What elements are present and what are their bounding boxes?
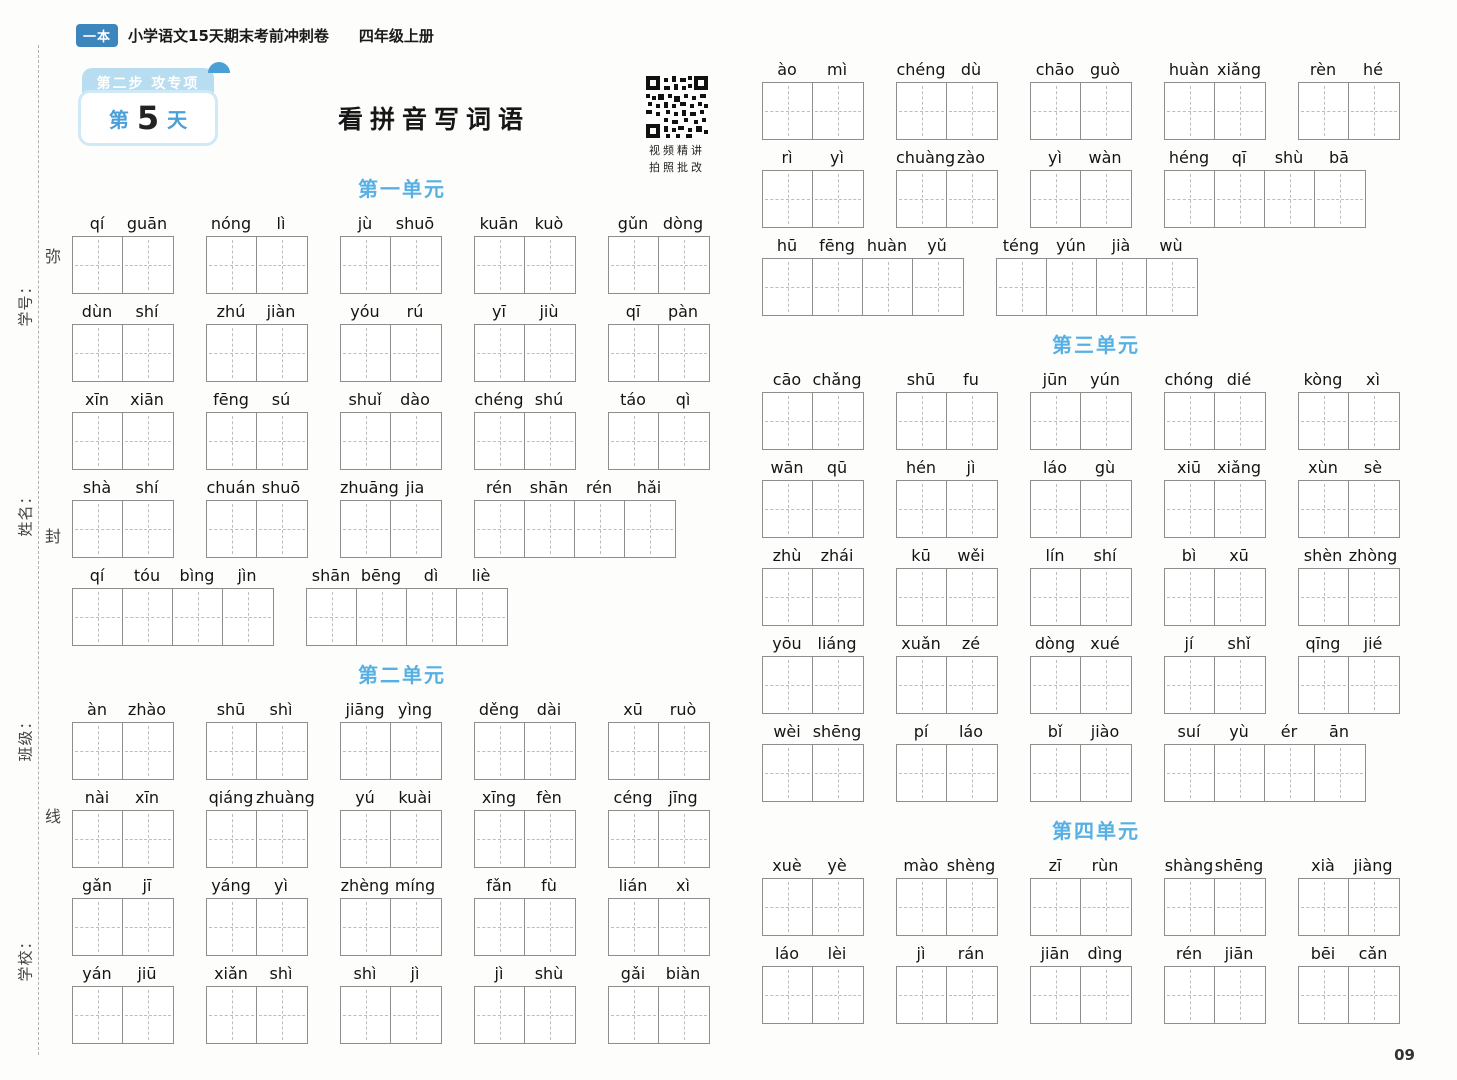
pinyin-syllable: láo <box>1030 458 1080 478</box>
word-group: kūwěi <box>896 546 998 626</box>
word-group: wèishēng <box>762 722 864 802</box>
writing-cell <box>609 987 659 1043</box>
pinyin-syllable: nóng <box>206 214 256 234</box>
writing-cell <box>1215 393 1265 449</box>
writing-cell <box>257 413 307 469</box>
pinyin-row: chóngdié <box>1164 370 1266 390</box>
pinyin-syllable: jīng <box>658 788 708 808</box>
word-group: xiūxiǎng <box>1164 458 1266 538</box>
header-bar: 一本 小学语文15天期末考前冲刺卷 四年级上册 <box>76 24 434 47</box>
pinyin-row: shānbēngdìliè <box>306 566 508 586</box>
writing-cell <box>1315 171 1365 227</box>
writing-cell <box>207 325 257 381</box>
writing-boxes <box>608 986 710 1044</box>
word-group: yōuliáng <box>762 634 864 714</box>
pinyin-syllable: shì <box>256 964 306 984</box>
pinyin-syllable: huàn <box>862 236 912 256</box>
writing-cell <box>947 967 997 1023</box>
writing-boxes <box>896 392 998 450</box>
writing-cell <box>475 811 525 867</box>
writing-cell <box>207 811 257 867</box>
writing-boxes <box>1164 82 1266 140</box>
pinyin-syllable: zào <box>946 148 996 168</box>
writing-cell <box>1215 967 1265 1023</box>
writing-cell <box>1165 481 1215 537</box>
pinyin-syllable: bā <box>1314 148 1364 168</box>
pinyin-row: shūshì <box>206 700 308 720</box>
writing-cell <box>357 589 407 645</box>
word-group: cāochǎng <box>762 370 864 450</box>
pinyin-syllable: qí <box>72 214 122 234</box>
pinyin-syllable: jiān <box>1030 944 1080 964</box>
pinyin-syllable: ào <box>762 60 812 80</box>
worksheet-page: 学号： 姓名： 班级： 学校： 弥 封 线 一本 小学语文15天期末考前冲刺卷 … <box>0 0 1457 1080</box>
pinyin-syllable: sú <box>256 390 306 410</box>
pinyin-syllable: shān <box>524 478 574 498</box>
writing-cell <box>207 899 257 955</box>
writing-boxes <box>762 480 864 538</box>
writing-cell <box>391 501 441 557</box>
writing-cell <box>525 899 575 955</box>
pinyin-syllable: rì <box>762 148 812 168</box>
pinyin-syllable: qū <box>812 458 862 478</box>
writing-boxes <box>1030 966 1132 1024</box>
pinyin-syllable: zhuàng <box>256 788 306 808</box>
pinyin-syllable: yì <box>256 876 306 896</box>
writing-cell <box>813 745 863 801</box>
pinyin-syllable: mì <box>812 60 862 80</box>
name-label: 姓名： <box>15 473 36 553</box>
section-title: 第四单元 <box>762 815 1430 844</box>
writing-cell <box>73 589 123 645</box>
writing-boxes <box>608 810 710 868</box>
pinyin-syllable: shuō <box>256 478 306 498</box>
writing-cell <box>341 723 391 779</box>
pinyin-syllable: jí <box>1164 634 1214 654</box>
pinyin-syllable: jia <box>390 478 440 498</box>
pinyin-syllable: xiǎn <box>206 964 256 984</box>
writing-cell <box>659 987 709 1043</box>
writing-boxes <box>762 392 864 450</box>
pinyin-syllable: kuò <box>524 214 574 234</box>
pinyin-syllable: gù <box>1080 458 1130 478</box>
pinyin-syllable: xū <box>1214 546 1264 566</box>
writing-boxes <box>896 656 998 714</box>
pinyin-row: shuǐdào <box>340 390 442 410</box>
word-row: hūfēnghuànyǔténgyúnjiàwù <box>762 236 1430 316</box>
pinyin-syllable: cǎn <box>1348 944 1398 964</box>
writing-cell <box>813 569 863 625</box>
pinyin-row: táoqì <box>608 390 710 410</box>
pinyin-syllable: chuàng <box>896 148 946 168</box>
pinyin-row: qiángzhuàng <box>206 788 308 808</box>
pinyin-syllable: dào <box>390 390 440 410</box>
writing-cell <box>207 413 257 469</box>
word-group: jíshǐ <box>1164 634 1266 714</box>
pinyin-syllable: wàn <box>1080 148 1130 168</box>
word-group: yánjiū <box>72 964 174 1044</box>
word-group: yījiù <box>474 302 576 382</box>
word-group: qīngjié <box>1298 634 1400 714</box>
writing-boxes <box>1164 170 1366 228</box>
pinyin-syllable: fǎn <box>474 876 524 896</box>
word-group: shūshì <box>206 700 308 780</box>
pinyin-row: yánjiū <box>72 964 174 984</box>
writing-cell <box>391 237 441 293</box>
pinyin-syllable: jì <box>390 964 440 984</box>
word-group: shàngshēng <box>1164 856 1266 936</box>
writing-cell <box>1165 171 1215 227</box>
pinyin-syllable: xuè <box>762 856 812 876</box>
writing-cell <box>475 987 525 1043</box>
qr-caption-line1: 视频精讲 <box>641 144 713 159</box>
word-group: xīnxiān <box>72 390 174 470</box>
pinyin-row: láogù <box>1030 458 1132 478</box>
pinyin-syllable: wěi <box>946 546 996 566</box>
writing-boxes <box>762 568 864 626</box>
pinyin-row: zhùzhái <box>762 546 864 566</box>
pinyin-syllable: chéng <box>474 390 524 410</box>
writing-boxes <box>340 810 442 868</box>
writing-boxes <box>72 898 174 956</box>
pinyin-syllable: shū <box>206 700 256 720</box>
writing-cell <box>123 589 173 645</box>
writing-cell <box>947 657 997 713</box>
writing-cell <box>1081 879 1131 935</box>
pinyin-syllable: chǎng <box>812 370 862 390</box>
writing-cell <box>1349 481 1399 537</box>
writing-cell <box>257 723 307 779</box>
writing-boxes <box>340 986 442 1044</box>
writing-cell <box>1265 745 1315 801</box>
pinyin-syllable: yóu <box>340 302 390 322</box>
word-row: yōuliángxuǎnzédòngxuéjíshǐqīngjié <box>762 634 1430 714</box>
writing-cell <box>1081 967 1131 1023</box>
pinyin-row: fǎnfù <box>474 876 576 896</box>
pinyin-syllable: yún <box>1046 236 1096 256</box>
writing-cell <box>1349 879 1399 935</box>
writing-cell <box>1031 879 1081 935</box>
writing-cell <box>1031 657 1081 713</box>
word-group: chéngdù <box>896 60 998 140</box>
writing-cell <box>475 501 525 557</box>
writing-boxes <box>1298 568 1400 626</box>
writing-cell <box>1215 481 1265 537</box>
word-group: línshí <box>1030 546 1132 626</box>
writing-boxes <box>762 744 864 802</box>
writing-cell <box>1081 745 1131 801</box>
left-column: 第一单元qíguānnónglìjùshuōkuānkuògǔndòngdùns… <box>72 160 732 1052</box>
pinyin-syllable: xì <box>658 876 708 896</box>
book-title: 小学语文15天期末考前冲刺卷 <box>128 25 329 46</box>
pinyin-syllable: biàn <box>658 964 708 984</box>
writing-cell <box>763 569 813 625</box>
pinyin-syllable: táo <box>608 390 658 410</box>
writing-cell <box>391 325 441 381</box>
pinyin-syllable: hén <box>896 458 946 478</box>
writing-boxes <box>1164 744 1366 802</box>
pinyin-row: rénjiān <box>1164 944 1266 964</box>
writing-cell <box>257 987 307 1043</box>
writing-boxes <box>206 810 308 868</box>
writing-boxes <box>1164 878 1266 936</box>
pinyin-row: shìjì <box>340 964 442 984</box>
pinyin-syllable: gǔn <box>608 214 658 234</box>
writing-cell <box>897 657 947 713</box>
pinyin-row: bǐjiào <box>1030 722 1132 742</box>
writing-cell <box>609 237 659 293</box>
writing-boxes <box>1030 480 1132 538</box>
pinyin-syllable: liè <box>456 566 506 586</box>
writing-cell <box>207 501 257 557</box>
writing-boxes <box>762 656 864 714</box>
word-group: qíguān <box>72 214 174 294</box>
writing-cell <box>863 259 913 315</box>
writing-boxes <box>72 500 174 558</box>
writing-cell <box>257 899 307 955</box>
pinyin-syllable: yì <box>1030 148 1080 168</box>
writing-cell <box>813 83 863 139</box>
writing-cell <box>1081 481 1131 537</box>
pinyin-row: jūnyún <box>1030 370 1132 390</box>
word-group: jìrán <box>896 944 998 1024</box>
writing-boxes <box>72 324 174 382</box>
word-group: táoqì <box>608 390 710 470</box>
writing-cell <box>391 723 441 779</box>
writing-cell <box>1299 879 1349 935</box>
pinyin-syllable: bǐ <box>1030 722 1080 742</box>
writing-cell <box>1215 171 1265 227</box>
pinyin-syllable: jù <box>340 214 390 234</box>
writing-cell <box>1081 83 1131 139</box>
writing-cell <box>625 501 675 557</box>
writing-cell <box>1299 967 1349 1023</box>
writing-boxes <box>206 412 308 470</box>
pinyin-syllable: xīng <box>474 788 524 808</box>
brand-logo: 一本 <box>76 24 118 47</box>
pinyin-row: hūfēnghuànyǔ <box>762 236 964 256</box>
writing-cell <box>123 723 173 779</box>
pinyin-syllable: xiān <box>122 390 172 410</box>
pinyin-row: rènhé <box>1298 60 1400 80</box>
writing-boxes <box>762 82 864 140</box>
writing-cell <box>659 325 709 381</box>
writing-boxes <box>896 744 998 802</box>
pinyin-row: gǔndòng <box>608 214 710 234</box>
pinyin-syllable: jiàn <box>256 302 306 322</box>
writing-cell <box>947 171 997 227</box>
page-title: 看拼音写词语 <box>338 100 530 136</box>
pinyin-syllable: qiáng <box>206 788 256 808</box>
pinyin-row: wèishēng <box>762 722 864 742</box>
word-group: qiángzhuàng <box>206 788 308 868</box>
writing-boxes <box>206 236 308 294</box>
school-label: 学校： <box>15 918 36 998</box>
pinyin-row: xīngfèn <box>474 788 576 808</box>
pinyin-syllable: jiào <box>1080 722 1130 742</box>
pinyin-syllable: láo <box>946 722 996 742</box>
pinyin-syllable: dù <box>946 60 996 80</box>
word-row: xīnxiānfēngsúshuǐdàochéngshútáoqì <box>72 390 732 470</box>
writing-cell <box>525 987 575 1043</box>
pinyin-syllable: lín <box>1030 546 1080 566</box>
writing-boxes <box>762 966 864 1024</box>
writing-cell <box>763 745 813 801</box>
writing-boxes <box>474 722 576 780</box>
writing-boxes <box>1298 82 1400 140</box>
writing-cell <box>609 723 659 779</box>
pinyin-row: bìxū <box>1164 546 1266 566</box>
writing-cell <box>341 501 391 557</box>
writing-cell <box>813 481 863 537</box>
pinyin-syllable: xiǎng <box>1214 458 1264 478</box>
pinyin-syllable: shèng <box>946 856 996 876</box>
writing-cell <box>475 413 525 469</box>
writing-boxes <box>72 986 174 1044</box>
writing-cell <box>123 501 173 557</box>
pinyin-row: láolèi <box>762 944 864 964</box>
writing-boxes <box>762 878 864 936</box>
pinyin-row: zhèngmíng <box>340 876 442 896</box>
pinyin-syllable: zhú <box>206 302 256 322</box>
writing-cell <box>813 393 863 449</box>
pinyin-syllable: qī <box>1214 148 1264 168</box>
word-group: nàixīn <box>72 788 174 868</box>
pinyin-row: yóurú <box>340 302 442 322</box>
pinyin-row: suíyùérān <box>1164 722 1366 742</box>
pinyin-syllable: guān <box>122 214 172 234</box>
writing-boxes <box>474 236 576 294</box>
writing-boxes <box>1030 744 1132 802</box>
writing-boxes <box>1298 392 1400 450</box>
writing-cell <box>525 325 575 381</box>
writing-cell <box>1215 745 1265 801</box>
word-group: rìyì <box>762 148 864 228</box>
word-group: xīngfèn <box>474 788 576 868</box>
word-group: jiāndìng <box>1030 944 1132 1024</box>
writing-boxes <box>608 412 710 470</box>
writing-cell <box>947 481 997 537</box>
word-row: nàixīnqiángzhuàngyúkuàixīngfèncéngjīng <box>72 788 732 868</box>
writing-boxes <box>72 236 174 294</box>
pinyin-row: xiūxiǎng <box>1164 458 1266 478</box>
writing-cell <box>813 657 863 713</box>
pinyin-row: shūfu <box>896 370 998 390</box>
pinyin-syllable: tóu <box>122 566 172 586</box>
writing-cell <box>475 325 525 381</box>
word-group: yóurú <box>340 302 442 382</box>
word-group: xuǎnzé <box>896 634 998 714</box>
writing-cell <box>897 393 947 449</box>
pinyin-syllable: jìn <box>222 566 272 586</box>
pinyin-syllable: rán <box>946 944 996 964</box>
pinyin-syllable: yìng <box>390 700 440 720</box>
writing-boxes <box>1298 480 1400 538</box>
word-group: dùnshí <box>72 302 174 382</box>
writing-cell <box>123 899 173 955</box>
pinyin-syllable: xì <box>1348 370 1398 390</box>
word-group: yìwàn <box>1030 148 1132 228</box>
writing-cell <box>763 879 813 935</box>
pinyin-syllable: téng <box>996 236 1046 256</box>
writing-cell <box>123 325 173 381</box>
writing-cell <box>763 83 813 139</box>
pinyin-syllable: fèn <box>524 788 574 808</box>
word-row: ànzhàoshūshìjiāngyìngděngdàixūruò <box>72 700 732 780</box>
writing-boxes <box>474 986 576 1044</box>
pinyin-syllable: kuài <box>390 788 440 808</box>
writing-cell <box>73 723 123 779</box>
word-group: jìshù <box>474 964 576 1044</box>
pinyin-syllable: xū <box>608 700 658 720</box>
writing-boxes <box>340 722 442 780</box>
word-group: jūnyún <box>1030 370 1132 450</box>
writing-cell <box>1215 569 1265 625</box>
pinyin-syllable: shí <box>122 302 172 322</box>
writing-cell <box>763 259 813 315</box>
pinyin-row: zhújiàn <box>206 302 308 322</box>
writing-cell <box>1031 569 1081 625</box>
pinyin-syllable: suí <box>1164 722 1214 742</box>
writing-cell <box>1299 393 1349 449</box>
pinyin-syllable: xué <box>1080 634 1130 654</box>
pinyin-row: xīnxiān <box>72 390 174 410</box>
writing-cell <box>123 413 173 469</box>
writing-cell <box>73 237 123 293</box>
writing-cell <box>897 745 947 801</box>
writing-cell <box>1097 259 1147 315</box>
pinyin-syllable: jì <box>474 964 524 984</box>
word-group: shūfu <box>896 370 998 450</box>
word-group: ànzhào <box>72 700 174 780</box>
word-group: píláo <box>896 722 998 802</box>
pinyin-row: xùnsè <box>1298 458 1400 478</box>
writing-boxes <box>896 170 998 228</box>
writing-boxes <box>896 568 998 626</box>
pinyin-row: kòngxì <box>1298 370 1400 390</box>
writing-boxes <box>1030 170 1132 228</box>
word-row: qítóubìngjìnshānbēngdìliè <box>72 566 732 646</box>
pinyin-syllable: míng <box>390 876 440 896</box>
writing-cell <box>525 811 575 867</box>
word-group: zhuāngjia <box>340 478 442 558</box>
word-group: hénjì <box>896 458 998 538</box>
writing-cell <box>1165 879 1215 935</box>
pinyin-syllable: qí <box>72 566 122 586</box>
word-group: jùshuō <box>340 214 442 294</box>
word-group: kuānkuò <box>474 214 576 294</box>
writing-boxes <box>608 324 710 382</box>
pinyin-row: jíshǐ <box>1164 634 1266 654</box>
writing-cell <box>207 723 257 779</box>
pinyin-syllable: shù <box>1264 148 1314 168</box>
pinyin-syllable: wù <box>1146 236 1196 256</box>
pinyin-syllable: shuǐ <box>340 390 390 410</box>
word-group: wānqū <box>762 458 864 538</box>
pinyin-syllable: yán <box>72 964 122 984</box>
word-row: dùnshízhújiànyóurúyījiùqīpàn <box>72 302 732 382</box>
pinyin-syllable: shuō <box>390 214 440 234</box>
pinyin-syllable: jì <box>896 944 946 964</box>
pinyin-syllable: nài <box>72 788 122 808</box>
writing-boxes <box>474 810 576 868</box>
word-group: láogù <box>1030 458 1132 538</box>
word-group: téngyúnjiàwù <box>996 236 1198 316</box>
writing-cell <box>475 237 525 293</box>
word-group: kòngxì <box>1298 370 1400 450</box>
writing-cell <box>73 811 123 867</box>
pinyin-syllable: yè <box>812 856 862 876</box>
